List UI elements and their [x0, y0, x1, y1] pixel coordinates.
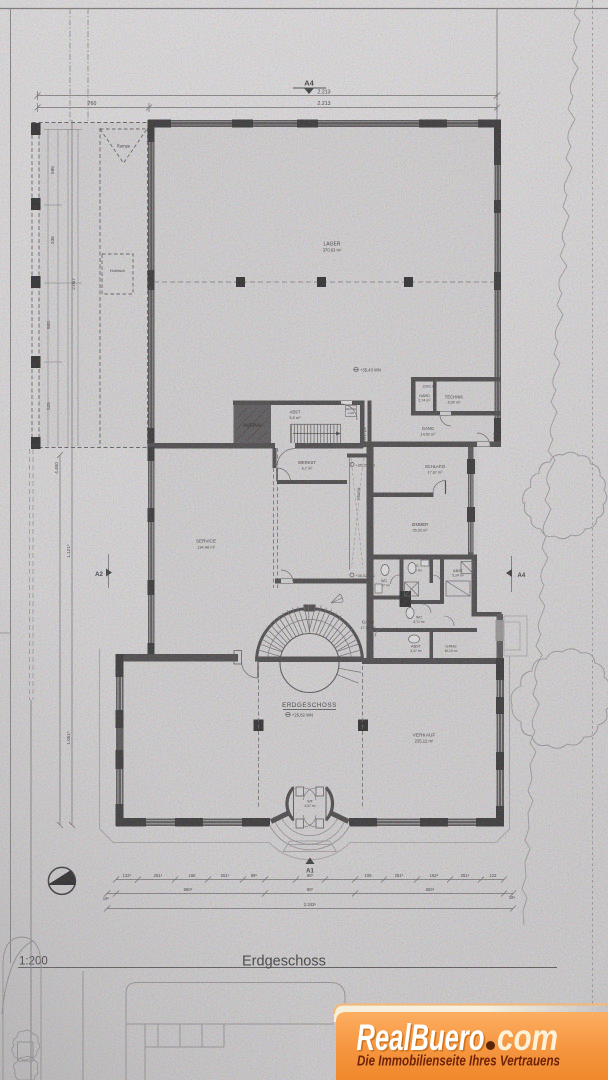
svg-text:RealBuero: RealBuero — [357, 1017, 485, 1058]
svg-text:com: com — [497, 1017, 558, 1058]
svg-text:Die Immobilienseite Ihres Vert: Die Immobilienseite Ihres Vertrauens — [357, 1054, 560, 1070]
